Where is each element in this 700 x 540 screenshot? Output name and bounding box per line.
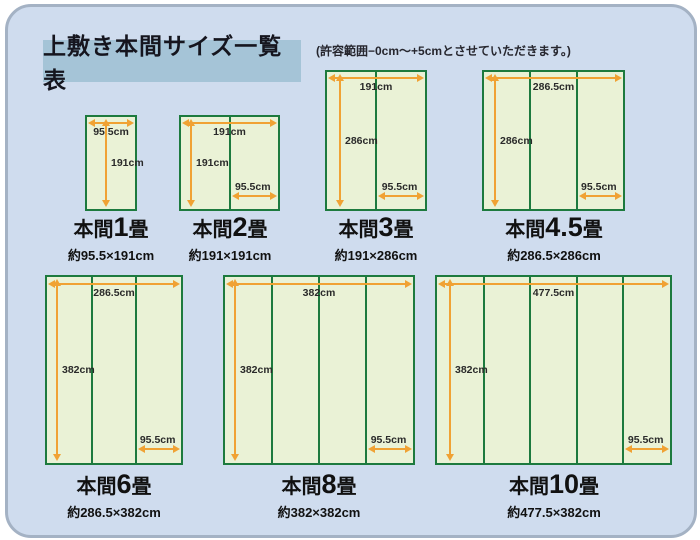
title-unit: 畳 xyxy=(248,219,268,241)
diagram-caption-honma-3: 本間3畳 約191×286cm xyxy=(276,214,476,264)
height-arrow xyxy=(339,76,341,205)
diagram-title: 本間8畳 xyxy=(219,471,419,500)
title-unit: 畳 xyxy=(394,219,414,241)
title-number: 1 xyxy=(113,212,128,242)
page-title-box: 上敷き本間サイズ一覧表 xyxy=(43,40,301,82)
title-prefix: 本間 xyxy=(76,476,116,498)
height-dimension-label: 191cm xyxy=(196,157,229,169)
height-dimension-label: 382cm xyxy=(455,364,488,376)
diagram-caption-honma-10: 本間10畳 約477.5×382cm xyxy=(454,471,654,521)
strip-width-label: 95.5cm xyxy=(230,181,277,193)
width-arrow xyxy=(487,77,620,79)
mat-seam-divider xyxy=(576,277,578,463)
height-dimension-label: 286cm xyxy=(500,135,533,147)
width-dimension-label: 477.5cm xyxy=(437,287,670,299)
title-unit: 畳 xyxy=(579,476,599,498)
strip-width-arrow xyxy=(370,448,410,450)
title-number: 6 xyxy=(116,469,131,499)
width-arrow xyxy=(228,283,410,285)
diagram-caption-honma-6: 本間6畳 約286.5×382cm xyxy=(14,471,214,521)
title-number: 2 xyxy=(232,212,247,242)
strip-width-label: 95.5cm xyxy=(577,181,621,193)
title-prefix: 本間 xyxy=(505,219,545,241)
title-prefix: 本間 xyxy=(338,219,378,241)
height-dimension-label: 382cm xyxy=(240,364,273,376)
title-unit: 畳 xyxy=(132,476,152,498)
strip-width-arrow xyxy=(581,195,620,197)
strip-width-arrow xyxy=(234,195,276,197)
mat-diagram-honma-3: 191cm 286cm 95.5cm xyxy=(325,70,427,211)
mat-diagram-honma-10: 477.5cm 382cm 95.5cm xyxy=(435,275,672,465)
height-arrow xyxy=(494,76,496,205)
diagram-size-label: 約382×382cm xyxy=(219,502,419,521)
strip-width-label: 95.5cm xyxy=(376,181,423,193)
strip-width-arrow xyxy=(380,195,422,197)
mat-diagram-honma-6: 286.5cm 382cm 95.5cm xyxy=(45,275,183,465)
diagram-title: 本間4.5畳 xyxy=(454,214,654,243)
title-number: 8 xyxy=(321,469,336,499)
height-arrow xyxy=(56,281,58,459)
diagram-size-label: 約286.5×286cm xyxy=(454,245,654,264)
width-arrow xyxy=(184,122,275,124)
title-number: 4.5 xyxy=(545,212,583,242)
mat-diagram-honma-4-5: 286.5cm 286cm 95.5cm xyxy=(482,70,625,211)
width-arrow xyxy=(50,283,178,285)
title-unit: 畳 xyxy=(583,219,603,241)
width-dimension-label: 286.5cm xyxy=(484,81,623,93)
height-dimension-label: 382cm xyxy=(62,364,95,376)
title-prefix: 本間 xyxy=(281,476,321,498)
height-dimension-label: 286cm xyxy=(345,135,378,147)
size-chart-page: 上敷き本間サイズ一覧表 (許容範囲−0cm〜+5cmとさせていただきます。) 9… xyxy=(0,0,700,540)
diagram-size-label: 約477.5×382cm xyxy=(454,502,654,521)
width-arrow xyxy=(90,122,132,124)
mat-diagram-honma-1: 95.5cm 191cm xyxy=(85,115,137,211)
mat-diagram-honma-2: 191cm 191cm 95.5cm xyxy=(179,115,280,211)
title-prefix: 本間 xyxy=(509,476,549,498)
title-number: 10 xyxy=(549,469,579,499)
diagram-caption-honma-4-5: 本間4.5畳 約286.5×286cm xyxy=(454,214,654,264)
diagram-title: 本間6畳 xyxy=(14,471,214,500)
diagram-size-label: 約286.5×382cm xyxy=(14,502,214,521)
diagram-size-label: 約191×286cm xyxy=(276,245,476,264)
strip-width-label: 95.5cm xyxy=(366,434,411,446)
page-title: 上敷き本間サイズ一覧表 xyxy=(43,27,301,95)
height-arrow xyxy=(105,121,107,205)
strip-width-arrow xyxy=(627,448,667,450)
title-number: 3 xyxy=(378,212,393,242)
height-arrow xyxy=(190,121,192,205)
width-arrow xyxy=(440,283,667,285)
title-prefix: 本間 xyxy=(192,219,232,241)
diagram-title: 本間10畳 xyxy=(454,471,654,500)
width-dimension-label: 286.5cm xyxy=(47,287,181,299)
strip-width-arrow xyxy=(140,448,178,450)
height-arrow xyxy=(234,281,236,459)
diagram-caption-honma-8: 本間8畳 約382×382cm xyxy=(219,471,419,521)
mat-seam-divider xyxy=(529,277,531,463)
tolerance-note: (許容範囲−0cm〜+5cmとさせていただきます。) xyxy=(316,42,571,59)
width-dimension-label: 382cm xyxy=(225,287,413,299)
width-dimension-label: 95.5cm xyxy=(87,126,135,138)
diagram-title: 本間3畳 xyxy=(276,214,476,243)
title-prefix: 本間 xyxy=(73,219,113,241)
mat-diagram-honma-8: 382cm 382cm 95.5cm xyxy=(223,275,415,465)
title-unit: 畳 xyxy=(337,476,357,498)
width-dimension-label: 191cm xyxy=(181,126,278,138)
height-dimension-label: 191cm xyxy=(111,157,144,169)
strip-width-label: 95.5cm xyxy=(623,434,668,446)
strip-width-label: 95.5cm xyxy=(136,434,179,446)
mat-seam-divider xyxy=(318,277,320,463)
width-dimension-label: 191cm xyxy=(327,81,425,93)
height-arrow xyxy=(449,281,451,459)
